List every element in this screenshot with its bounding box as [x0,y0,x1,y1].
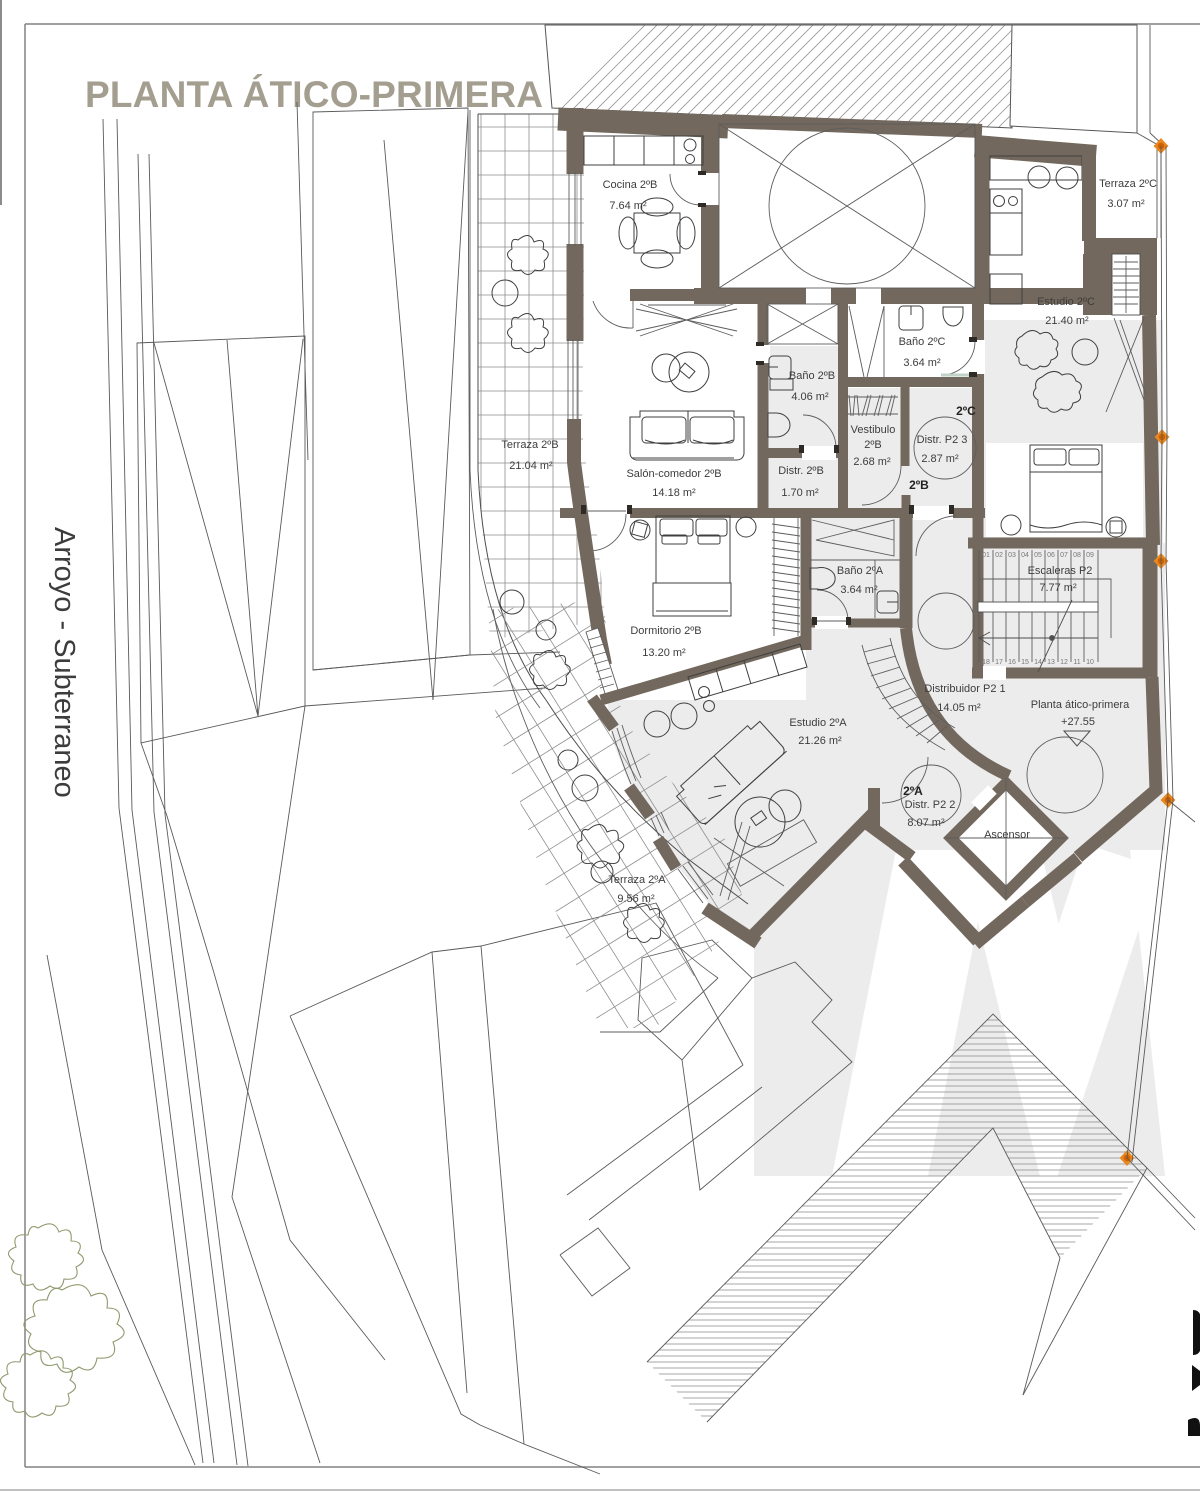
svg-text:13: 13 [1047,659,1055,666]
svg-text:10: 10 [1086,659,1094,666]
svg-text:06: 06 [1047,552,1055,559]
svg-text:17: 17 [995,659,1003,666]
svg-text:Baño 2ºC: Baño 2ºC [899,336,946,348]
svg-text:2.87 m²: 2.87 m² [921,453,959,465]
svg-text:2ºB: 2ºB [909,478,929,492]
svg-text:Distr. P2 3: Distr. P2 3 [917,434,968,446]
svg-text:Baño 2ºA: Baño 2ºA [837,565,884,577]
svg-text:14.18 m²: 14.18 m² [652,487,696,499]
svg-text:Distribuidor P2 1: Distribuidor P2 1 [924,683,1005,695]
svg-text:7.77 m²: 7.77 m² [1039,582,1077,594]
svg-text:07: 07 [1060,552,1068,559]
svg-text:Distr. P2 2: Distr. P2 2 [905,799,956,811]
svg-text:Salón-comedor 2ºB: Salón-comedor 2ºB [626,468,721,480]
svg-text:Ascensor: Ascensor [984,829,1030,841]
svg-text:16: 16 [1008,659,1016,666]
svg-text:2ºB: 2ºB [864,439,881,451]
svg-text:08: 08 [1073,552,1081,559]
svg-text:Cocina 2ºB: Cocina 2ºB [603,179,658,191]
svg-text:21.26 m²: 21.26 m² [798,735,842,747]
svg-text:09: 09 [1086,552,1094,559]
svg-text:8.07 m²: 8.07 m² [907,817,945,829]
svg-text:Planta ático-primera: Planta ático-primera [1031,699,1130,711]
svg-text:21.40 m²: 21.40 m² [1045,315,1089,327]
svg-text:Terraza 2ºA: Terraza 2ºA [608,874,666,886]
svg-text:PLANTA ÁTICO-PRIMERA: PLANTA ÁTICO-PRIMERA [85,74,545,115]
svg-text:2.68 m²: 2.68 m² [853,456,891,468]
svg-text:15: 15 [1021,659,1029,666]
svg-text:Dormitorio 2ºB: Dormitorio 2ºB [630,625,701,637]
svg-text:14: 14 [1034,659,1042,666]
svg-text:4.06 m²: 4.06 m² [791,391,829,403]
svg-text:Estudio 2ºC: Estudio 2ºC [1037,296,1095,308]
svg-text:1.70 m²: 1.70 m² [781,487,819,499]
svg-text:Terraza 2ºC: Terraza 2ºC [1099,178,1157,190]
svg-text:01: 01 [982,552,990,559]
svg-text:Distr. 2ºB: Distr. 2ºB [778,465,824,477]
svg-text:3.64 m²: 3.64 m² [840,584,878,596]
svg-text:Baño 2ºB: Baño 2ºB [789,370,835,382]
svg-text:Estudio 2ºA: Estudio 2ºA [789,717,847,729]
svg-text:02: 02 [995,552,1003,559]
svg-text:Vestibulo: Vestibulo [851,424,896,436]
svg-text:+27.55: +27.55 [1061,716,1095,728]
svg-text:7.64 m²: 7.64 m² [609,200,647,212]
svg-text:13.20 m²: 13.20 m² [642,647,686,659]
svg-text:21.04 m²: 21.04 m² [509,460,553,472]
svg-text:11: 11 [1073,659,1080,666]
svg-text:Terraza 2ºB: Terraza 2ºB [501,439,558,451]
svg-text:Arroyo - Subterraneo: Arroyo - Subterraneo [48,527,80,798]
svg-text:14.05 m²: 14.05 m² [937,702,981,714]
svg-text:9.56 m²: 9.56 m² [617,893,655,905]
svg-text:03: 03 [1008,552,1016,559]
svg-text:2ºC: 2ºC [956,404,976,418]
svg-text:12: 12 [1060,659,1068,666]
svg-text:3.07 m²: 3.07 m² [1107,198,1145,210]
svg-text:Escaleras P2: Escaleras P2 [1028,565,1093,577]
svg-text:18: 18 [982,659,990,666]
svg-text:05: 05 [1034,552,1042,559]
svg-text:3.64 m²: 3.64 m² [903,357,941,369]
svg-text:2ºA: 2ºA [903,784,923,798]
svg-text:04: 04 [1021,552,1029,559]
